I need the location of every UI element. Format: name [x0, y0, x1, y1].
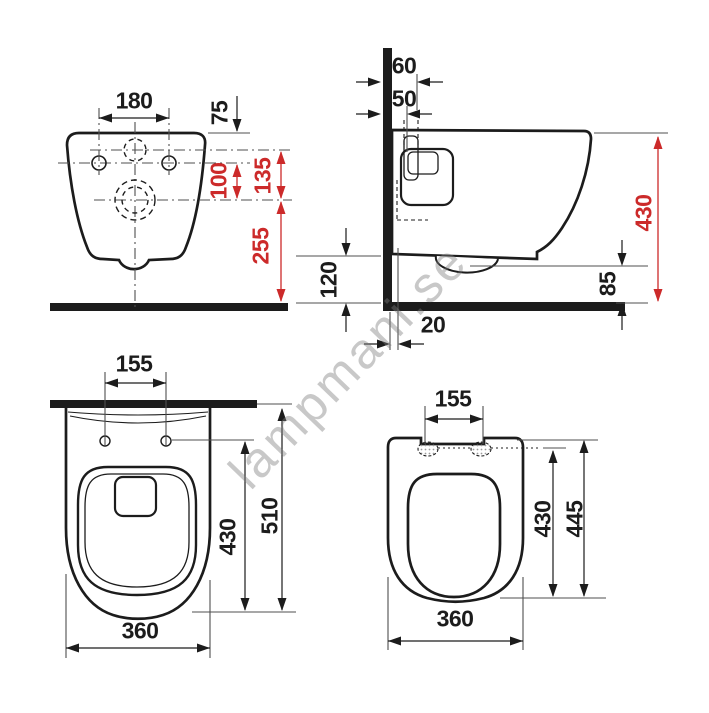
- plan-wall-bar: [50, 400, 257, 408]
- front-dim-top-to-holes: 75: [209, 101, 232, 126]
- plan-flush-ledge: [115, 477, 156, 516]
- side-view: [296, 48, 668, 350]
- front-view: [50, 96, 292, 311]
- plan-dim-width: 360: [122, 620, 159, 643]
- plan-dim-depth: 510: [259, 498, 282, 535]
- front-toilet-outline: [67, 133, 205, 269]
- front-dim-holes-to-outlet: 100: [208, 163, 231, 200]
- front-dim-hole-spacing: 180: [116, 90, 153, 113]
- seat-dim-width: 360: [437, 608, 474, 631]
- technical-drawing-canvas: 180 75 100 135 255 60 50 430 120 85 20 1…: [0, 0, 709, 713]
- front-dim-inlet-to-outlet: 135: [252, 158, 275, 195]
- front-dim-outlet-to-floor: 255: [250, 228, 273, 265]
- front-floor-line: [50, 303, 288, 311]
- seat-dim-hinge-spacing: 155: [435, 388, 472, 411]
- side-dim-inlet-depth: 50: [392, 88, 417, 111]
- side-dim-outlet-height: 85: [597, 272, 620, 297]
- side-dim-wall-gap: 20: [421, 314, 446, 337]
- side-dim-height: 430: [633, 195, 656, 232]
- side-floor-bar: [383, 302, 625, 311]
- side-dim-underside: 120: [318, 262, 341, 299]
- plan-dim-hinge-spacing: 155: [116, 353, 153, 376]
- seat-dim-hinge-to-front: 430: [532, 501, 555, 538]
- seat-hinge-left: [418, 442, 438, 456]
- seat-dim-length: 445: [564, 501, 587, 538]
- seat-hinge-right: [471, 442, 491, 456]
- side-dim-flush-depth: 60: [392, 55, 417, 78]
- plan-dim-hinge-to-front: 430: [217, 519, 240, 556]
- line-art: [0, 0, 709, 713]
